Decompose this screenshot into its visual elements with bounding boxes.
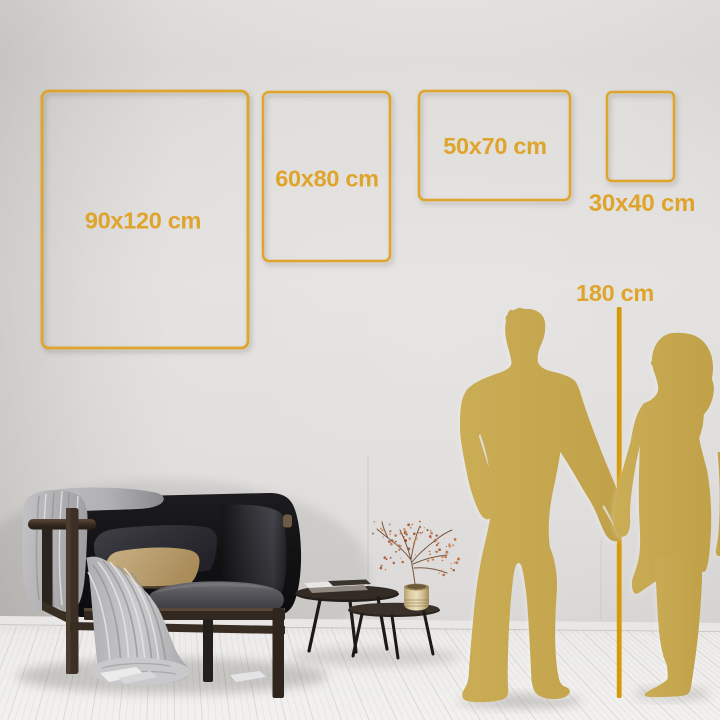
svg-text:180 cm: 180 cm — [576, 280, 654, 306]
svg-text:60x80 cm: 60x80 cm — [275, 166, 378, 192]
svg-text:50x70 cm: 50x70 cm — [443, 133, 546, 159]
svg-text:90x120 cm: 90x120 cm — [85, 208, 201, 234]
svg-text:30x40 cm: 30x40 cm — [589, 190, 696, 217]
